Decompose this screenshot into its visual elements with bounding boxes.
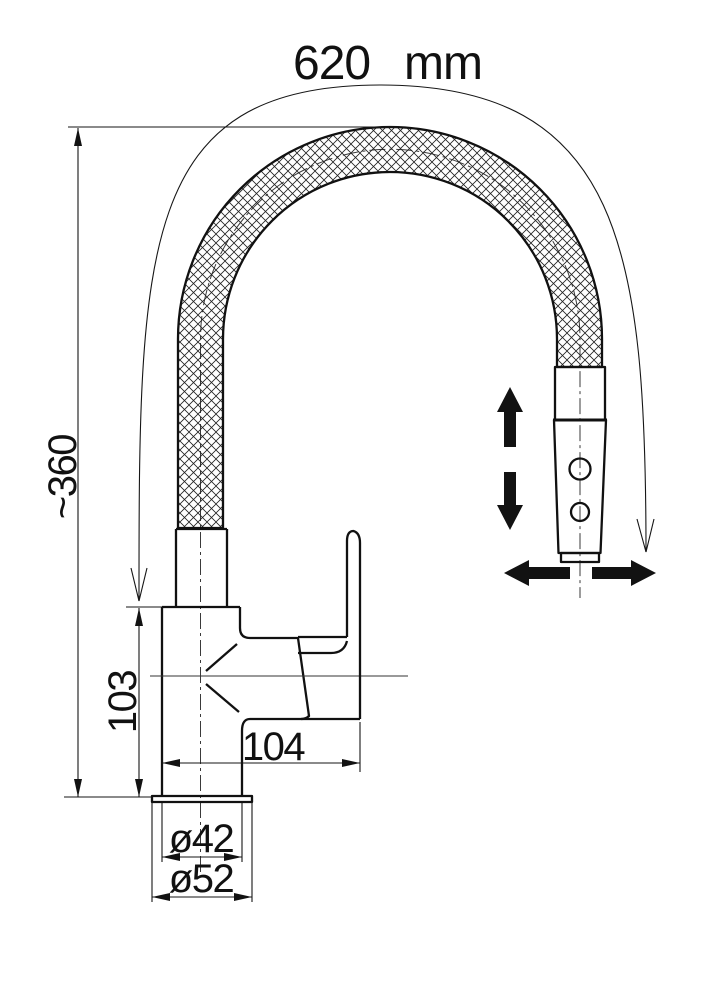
overall-height-label: ~360 [41,435,85,519]
hose-length-value: 620 [293,37,370,90]
technical-drawing-canvas: 620 mm ~360 103 104 ø42 [0,0,707,1000]
dim-arrow-up [74,128,82,146]
spray-down-arrow-icon [497,472,523,530]
dim-arrow-left [162,759,180,767]
hose-length-unit: mm [404,37,482,90]
shank-diameter-label: ø42 [169,817,234,861]
base-flange [152,796,252,802]
spout-reach-label: 104 [242,725,305,769]
spray-left-arrow-icon [504,560,570,586]
dimension-shank-diameter: ø42 [162,803,242,862]
handle-lever [298,531,360,719]
flex-hose-arc [178,127,602,528]
dim-arrow-left [152,893,170,901]
waterway-diagonal-lower [206,684,239,712]
dim-arrow-up [135,608,143,626]
dim-arrow-down [135,779,143,797]
dimension-body-height: 103 [101,607,162,797]
spray-movement-arrows [497,387,656,586]
spray-up-arrow-icon [497,387,523,447]
handle-escutcheon [298,637,347,653]
dimension-spout-reach: 104 [162,722,360,772]
base-diameter-label: ø52 [169,857,234,901]
dim-arrow-right [234,893,252,901]
body-height-label: 103 [101,671,145,733]
spout-column [176,529,227,607]
faucet-figure [150,127,656,872]
waterway-diagonal-upper [206,644,237,671]
dim-arrow-right [342,759,360,767]
spray-right-arrow-icon [592,560,656,586]
cartridge-cover-curve [298,638,309,719]
dim-arrow-down [74,779,82,797]
